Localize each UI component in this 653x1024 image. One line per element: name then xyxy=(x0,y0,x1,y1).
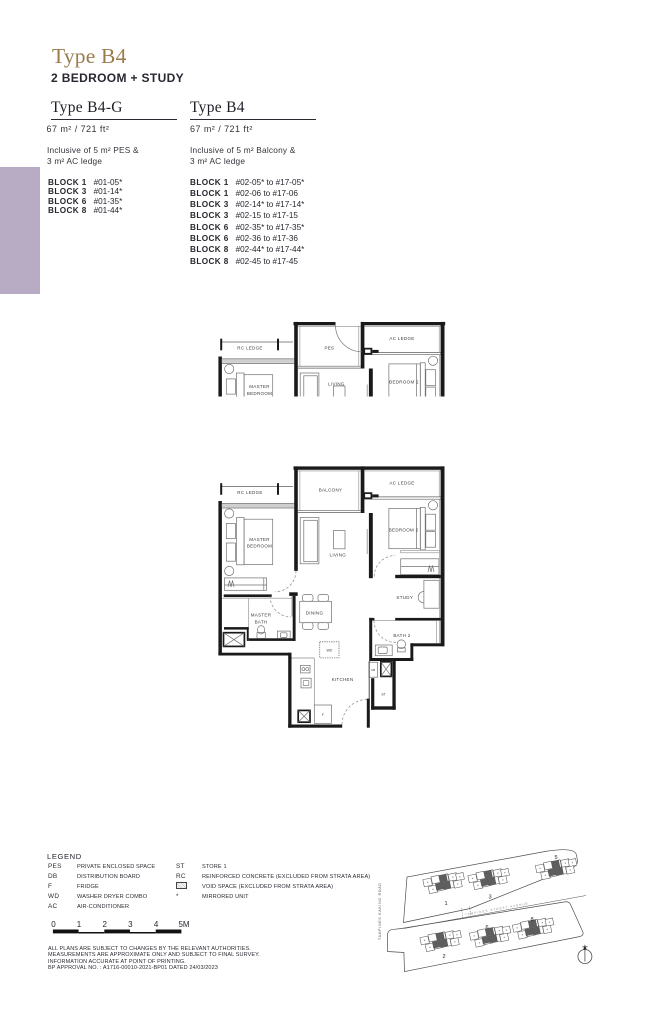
svg-text:BEDROOM: BEDROOM xyxy=(247,544,272,549)
svg-text:AC LEDGE: AC LEDGE xyxy=(389,481,414,486)
svg-text:BALCONY: BALCONY xyxy=(319,488,343,493)
svg-text:F: F xyxy=(322,713,324,717)
svg-text:MASTER: MASTER xyxy=(249,537,270,542)
svg-text:BEDROOM 2: BEDROOM 2 xyxy=(389,380,419,385)
svg-text:1: 1 xyxy=(444,901,447,907)
svg-text:2: 2 xyxy=(102,920,107,929)
svg-text:PES: PES xyxy=(324,346,334,351)
svg-text:MASTER: MASTER xyxy=(251,613,272,618)
svg-text:LIVING: LIVING xyxy=(328,382,345,387)
svg-text:ST: ST xyxy=(381,693,385,697)
svg-text:3: 3 xyxy=(488,895,491,901)
svg-text:6: 6 xyxy=(485,925,488,931)
svg-text:DINING: DINING xyxy=(306,610,324,615)
svg-text:5: 5 xyxy=(554,855,557,861)
svg-text:MASTER: MASTER xyxy=(249,384,270,389)
svg-text:BEDROOM: BEDROOM xyxy=(247,391,272,396)
svg-text:WD: WD xyxy=(326,649,332,653)
svg-text:0: 0 xyxy=(51,920,56,929)
svg-text:BATH 2: BATH 2 xyxy=(393,633,410,638)
svg-text:BATH: BATH xyxy=(255,620,268,625)
svg-text:TAMPINES KAKING ROAD: TAMPINES KAKING ROAD xyxy=(378,882,382,940)
svg-text:1: 1 xyxy=(77,920,82,929)
svg-text:4: 4 xyxy=(154,920,159,929)
svg-text:LIVING: LIVING xyxy=(330,553,347,558)
svg-text:5M: 5M xyxy=(178,920,189,929)
svg-text:3: 3 xyxy=(128,920,133,929)
svg-text:RC LEDGE: RC LEDGE xyxy=(237,490,262,495)
svg-text:STUDY: STUDY xyxy=(396,595,413,600)
svg-text:KITCHEN: KITCHEN xyxy=(332,677,354,682)
svg-text:DB: DB xyxy=(371,668,375,672)
svg-text:2: 2 xyxy=(442,954,445,960)
svg-text:BEDROOM 2: BEDROOM 2 xyxy=(389,528,419,533)
svg-text:8: 8 xyxy=(530,917,533,923)
